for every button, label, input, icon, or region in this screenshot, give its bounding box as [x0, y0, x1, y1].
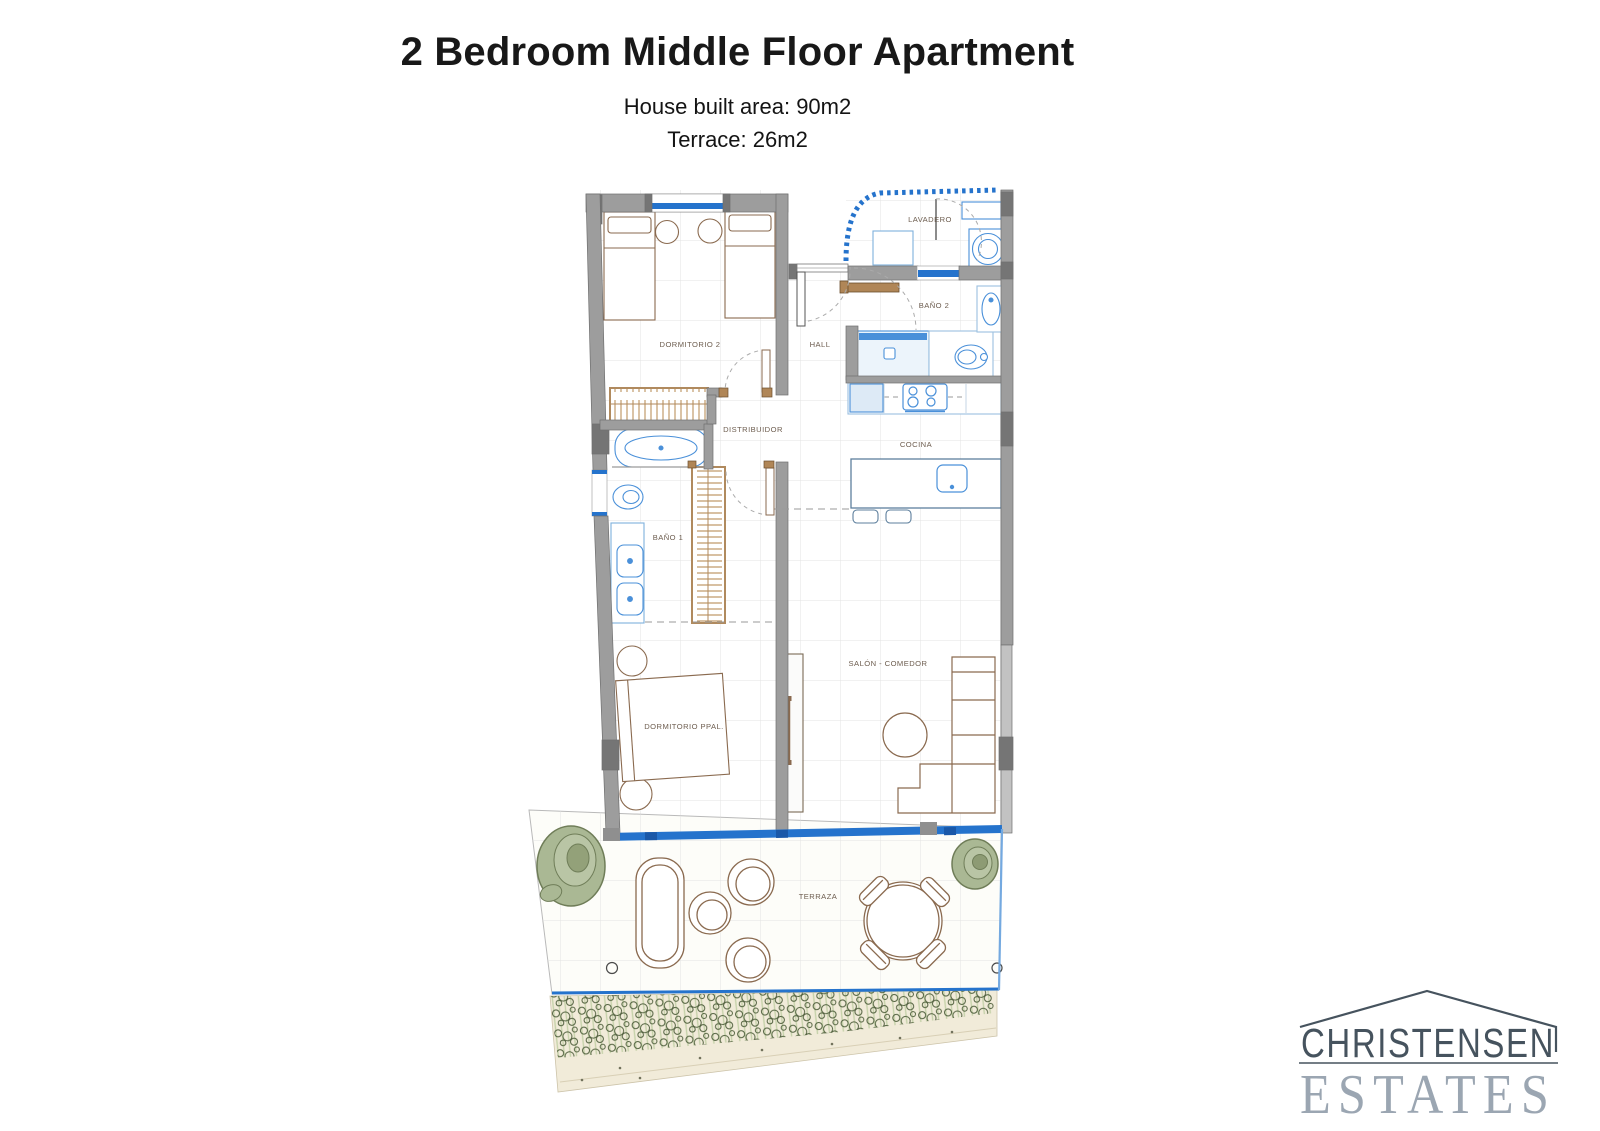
wardrobe: [610, 388, 708, 421]
nightstand: [698, 219, 722, 243]
floor-plan: LAVADERO BAÑO 2 DORMITORIO 2 HALL DISTRI…: [520, 183, 1015, 1103]
room-label-terraza: TERRAZA: [799, 892, 838, 901]
logo-subname: ESTATES: [1300, 1064, 1556, 1124]
room-label-bano-1: BAÑO 1: [653, 533, 684, 542]
company-logo: CHRISTENSEN ESTATES: [1268, 972, 1580, 1124]
stool: [853, 510, 878, 523]
hall-wardrobe: [692, 467, 725, 623]
room-label-distribuidor: DISTRIBUIDOR: [723, 425, 783, 434]
window: [651, 203, 725, 209]
room-label-hall: HALL: [810, 340, 831, 349]
room-label-lavadero: LAVADERO: [908, 215, 952, 224]
page: 2 Bedroom Middle Floor Apartment House b…: [0, 0, 1600, 1131]
room-label-dormitorio-ppal: DORMITORIO PPAL.: [644, 722, 724, 731]
nightstand: [617, 646, 647, 676]
room-label-cocina: COCINA: [900, 440, 933, 449]
nightstand: [620, 778, 652, 810]
plant-pot: [537, 826, 605, 906]
window: [592, 512, 607, 516]
room-label-bano-2: BAÑO 2: [919, 301, 950, 310]
page-title: 2 Bedroom Middle Floor Apartment: [0, 30, 1475, 75]
window: [918, 270, 959, 277]
subtitle-built-area: House built area: 90m2: [0, 94, 1475, 120]
kitchen-island: [851, 459, 1001, 508]
subtitle-terrace: Terrace: 26m2: [0, 127, 1475, 153]
stool: [886, 510, 911, 523]
door-leaf: [766, 468, 774, 515]
window: [592, 470, 607, 474]
door-leaf: [762, 350, 770, 392]
coffee-table: [883, 713, 927, 757]
door-leaf: [797, 272, 805, 326]
plant-pot: [952, 839, 998, 889]
room-label-dormitorio-2: DORMITORIO 2: [660, 340, 721, 349]
logo-name: CHRISTENSEN: [1301, 1020, 1555, 1066]
garden-strip: [549, 990, 997, 1092]
room-label-salon-comedor: SALÓN - COMEDOR: [849, 659, 928, 668]
nightstand: [656, 221, 679, 244]
